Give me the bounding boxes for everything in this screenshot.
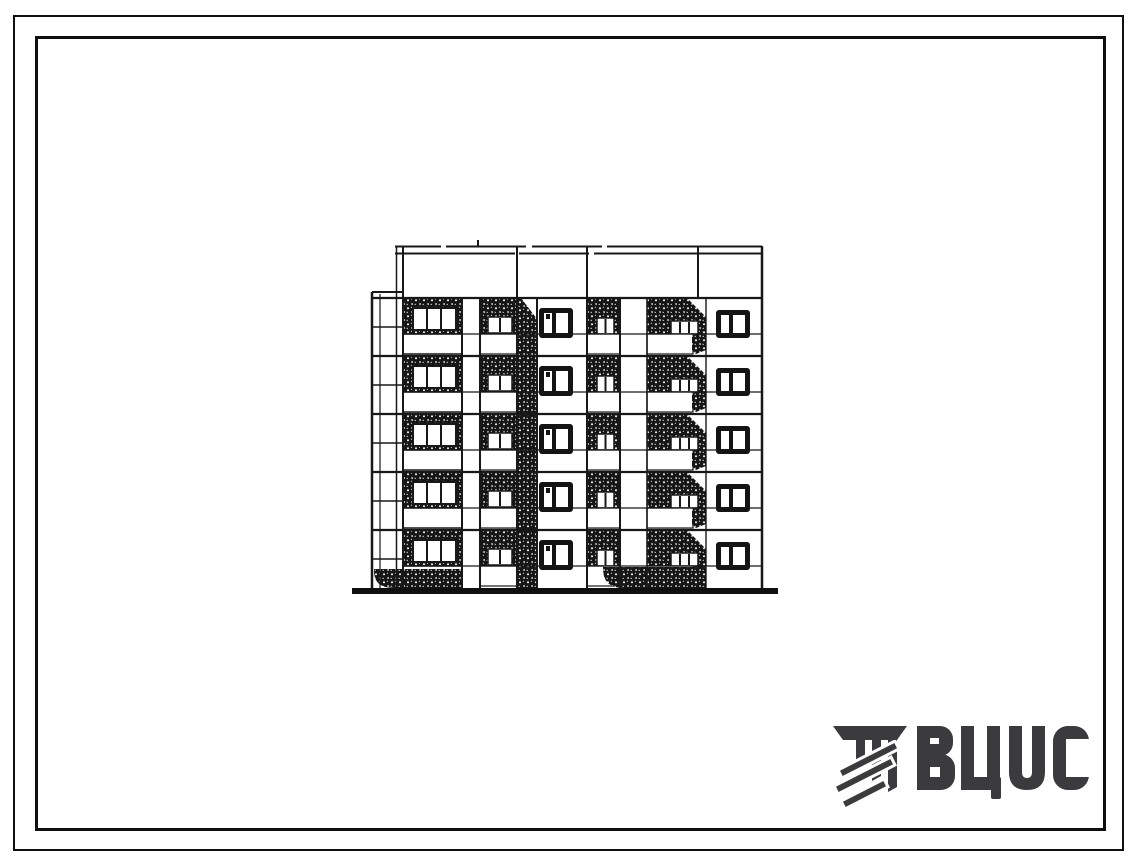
vcis-logo bbox=[820, 700, 1120, 815]
logo-lettering bbox=[917, 726, 1094, 799]
building-elevation-drawing bbox=[350, 236, 795, 598]
logo-emblem-icon bbox=[833, 726, 907, 809]
catalogue-sheet: ВЦИС bbox=[0, 0, 1134, 863]
ground-line bbox=[352, 588, 778, 594]
